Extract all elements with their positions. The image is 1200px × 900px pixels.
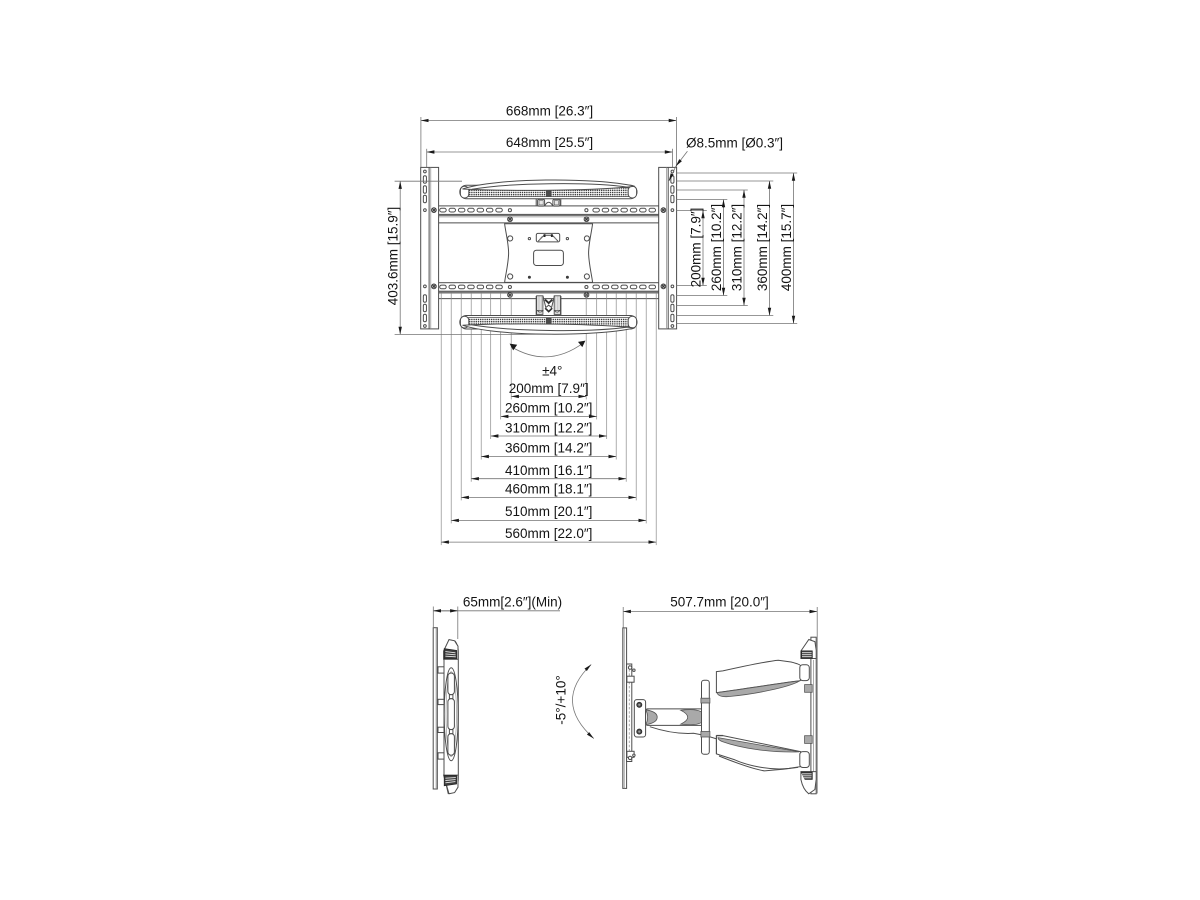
svg-text:Ø8.5mm [Ø0.3″]: Ø8.5mm [Ø0.3″] xyxy=(686,135,783,150)
svg-text:648mm [25.5″]: 648mm [25.5″] xyxy=(506,135,593,150)
svg-text:668mm [26.3″]: 668mm [26.3″] xyxy=(506,104,593,119)
svg-text:200mm [7.9″]: 200mm [7.9″] xyxy=(688,208,703,288)
svg-text:360mm [14.2″]: 360mm [14.2″] xyxy=(755,204,770,291)
svg-text:460mm [18.1″]: 460mm [18.1″] xyxy=(505,481,592,496)
svg-text:403.6mm [15.9″]: 403.6mm [15.9″] xyxy=(386,207,401,306)
svg-text:507.7mm [20.0″]: 507.7mm [20.0″] xyxy=(670,595,769,610)
svg-text:200mm [7.9″]: 200mm [7.9″] xyxy=(509,381,589,396)
svg-text:400mm [15.7″]: 400mm [15.7″] xyxy=(779,204,794,291)
svg-text:360mm [14.2″]: 360mm [14.2″] xyxy=(505,440,592,455)
svg-text:260mm [10.2″]: 260mm [10.2″] xyxy=(709,204,724,291)
svg-text:260mm [10.2″]: 260mm [10.2″] xyxy=(505,401,592,416)
svg-text:310mm [12.2″]: 310mm [12.2″] xyxy=(505,420,592,435)
svg-text:410mm [16.1″]: 410mm [16.1″] xyxy=(505,463,592,478)
svg-text:510mm [20.1″]: 510mm [20.1″] xyxy=(505,504,592,519)
svg-text:65mm[2.6″](Min): 65mm[2.6″](Min) xyxy=(463,595,562,610)
svg-text:-5°/+10°: -5°/+10° xyxy=(554,675,569,724)
svg-text:±4°: ±4° xyxy=(542,364,562,379)
svg-text:310mm [12.2″]: 310mm [12.2″] xyxy=(729,204,744,291)
svg-text:560mm [22.0″]: 560mm [22.0″] xyxy=(505,526,592,541)
